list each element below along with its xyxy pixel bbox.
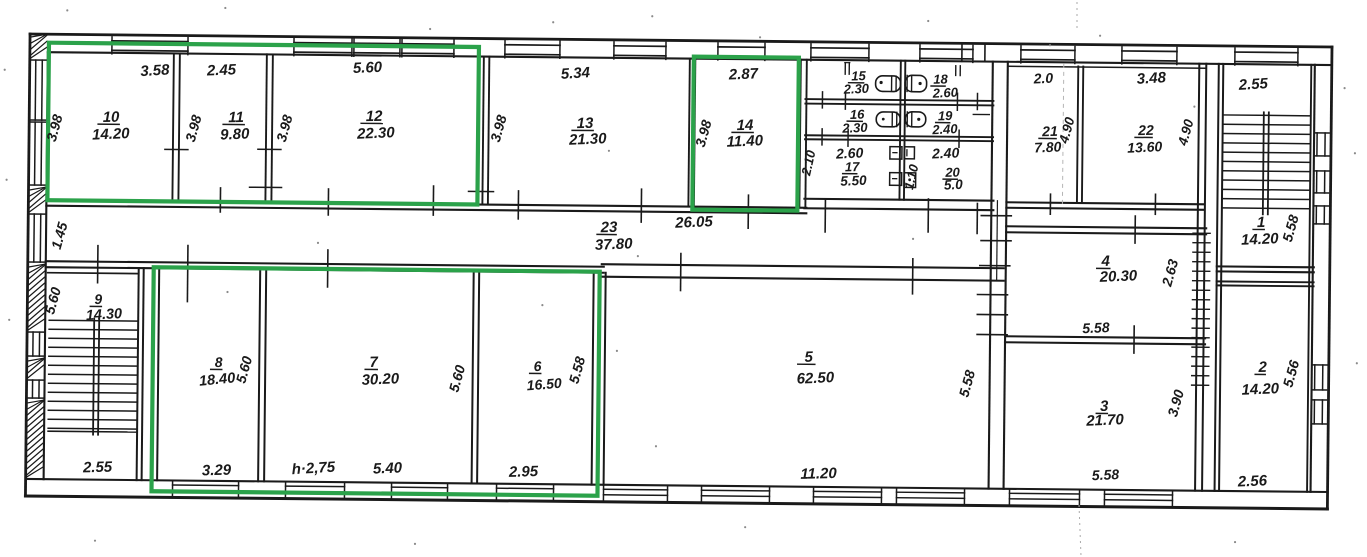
svg-text:21: 21 xyxy=(1041,123,1058,139)
svg-text:14: 14 xyxy=(736,117,754,134)
svg-text:14.20: 14.20 xyxy=(1241,380,1280,399)
svg-text:5.34: 5.34 xyxy=(560,64,591,83)
svg-text:2.56: 2.56 xyxy=(1236,472,1268,490)
svg-text:2: 2 xyxy=(1257,359,1267,376)
svg-text:2.63: 2.63 xyxy=(1158,257,1181,289)
svg-text:3.98: 3.98 xyxy=(273,113,296,144)
svg-text:2.87: 2.87 xyxy=(728,65,760,83)
svg-text:2.55: 2.55 xyxy=(82,459,113,477)
svg-text:5.58: 5.58 xyxy=(1082,319,1110,336)
svg-text:21.30: 21.30 xyxy=(568,130,608,149)
svg-text:12: 12 xyxy=(366,108,384,125)
svg-text:16.50: 16.50 xyxy=(526,375,562,394)
svg-text:3.98: 3.98 xyxy=(182,113,205,144)
svg-text:2.40: 2.40 xyxy=(931,121,959,137)
svg-text:13: 13 xyxy=(576,115,594,132)
svg-text:5.50: 5.50 xyxy=(840,173,867,189)
svg-text:23: 23 xyxy=(599,219,618,236)
svg-text:2.30: 2.30 xyxy=(842,81,870,97)
svg-text:1.45: 1.45 xyxy=(48,220,71,251)
svg-text:2.45: 2.45 xyxy=(206,61,238,79)
svg-text:3.58: 3.58 xyxy=(140,61,171,80)
svg-text:5.58: 5.58 xyxy=(1279,213,1302,244)
svg-text:10: 10 xyxy=(103,109,121,126)
svg-text:11.20: 11.20 xyxy=(800,465,837,483)
svg-text:2.10: 2.10 xyxy=(798,148,819,178)
svg-text:2.0: 2.0 xyxy=(1032,70,1053,87)
svg-text:5.56: 5.56 xyxy=(1280,358,1303,389)
svg-text:5.60: 5.60 xyxy=(233,354,256,385)
svg-text:13.60: 13.60 xyxy=(1127,138,1163,155)
svg-text:3.29: 3.29 xyxy=(202,462,232,480)
svg-text:3.90: 3.90 xyxy=(1164,388,1187,419)
svg-text:4.90: 4.90 xyxy=(1175,117,1197,148)
svg-text:37.80: 37.80 xyxy=(595,235,634,254)
svg-text:5.58: 5.58 xyxy=(566,355,589,386)
svg-text:2.40: 2.40 xyxy=(931,144,960,161)
svg-text:5.58: 5.58 xyxy=(1091,466,1119,483)
svg-text:6: 6 xyxy=(533,358,541,374)
svg-text:22: 22 xyxy=(1137,122,1154,138)
svg-text:26.05: 26.05 xyxy=(674,213,714,232)
svg-text:5.58: 5.58 xyxy=(955,368,978,399)
svg-text:14.30: 14.30 xyxy=(85,306,122,324)
svg-text:3.98: 3.98 xyxy=(487,113,510,144)
svg-text:14.20: 14.20 xyxy=(1241,230,1280,249)
svg-text:5.0: 5.0 xyxy=(944,177,964,193)
svg-text:2.60: 2.60 xyxy=(931,85,959,101)
svg-text:h·2,75: h·2,75 xyxy=(291,459,336,479)
svg-text:1: 1 xyxy=(1257,214,1266,231)
svg-text:11.40: 11.40 xyxy=(726,132,764,151)
svg-text:20.30: 20.30 xyxy=(1098,267,1138,286)
svg-text:21.70: 21.70 xyxy=(1085,411,1125,430)
svg-text:3.48: 3.48 xyxy=(1136,69,1167,88)
svg-text:2.95: 2.95 xyxy=(508,463,539,481)
svg-text:22.30: 22.30 xyxy=(356,124,396,143)
svg-text:5.60: 5.60 xyxy=(445,363,468,394)
svg-text:11: 11 xyxy=(228,109,244,126)
svg-text:2.55: 2.55 xyxy=(1237,75,1269,94)
svg-text:5.60: 5.60 xyxy=(353,59,384,77)
svg-text:62.50: 62.50 xyxy=(796,369,835,388)
svg-text:5: 5 xyxy=(804,349,813,366)
svg-text:5.40: 5.40 xyxy=(373,459,404,477)
svg-text:9.80: 9.80 xyxy=(220,125,251,143)
svg-text:2.30: 2.30 xyxy=(841,120,869,136)
svg-text:7: 7 xyxy=(369,354,378,371)
svg-text:9: 9 xyxy=(94,291,102,307)
svg-text:18.40: 18.40 xyxy=(198,370,236,389)
svg-text:4.90: 4.90 xyxy=(1056,115,1078,146)
svg-text:30.20: 30.20 xyxy=(361,370,400,389)
svg-text:8: 8 xyxy=(215,354,223,370)
svg-text:14.20: 14.20 xyxy=(92,125,131,144)
